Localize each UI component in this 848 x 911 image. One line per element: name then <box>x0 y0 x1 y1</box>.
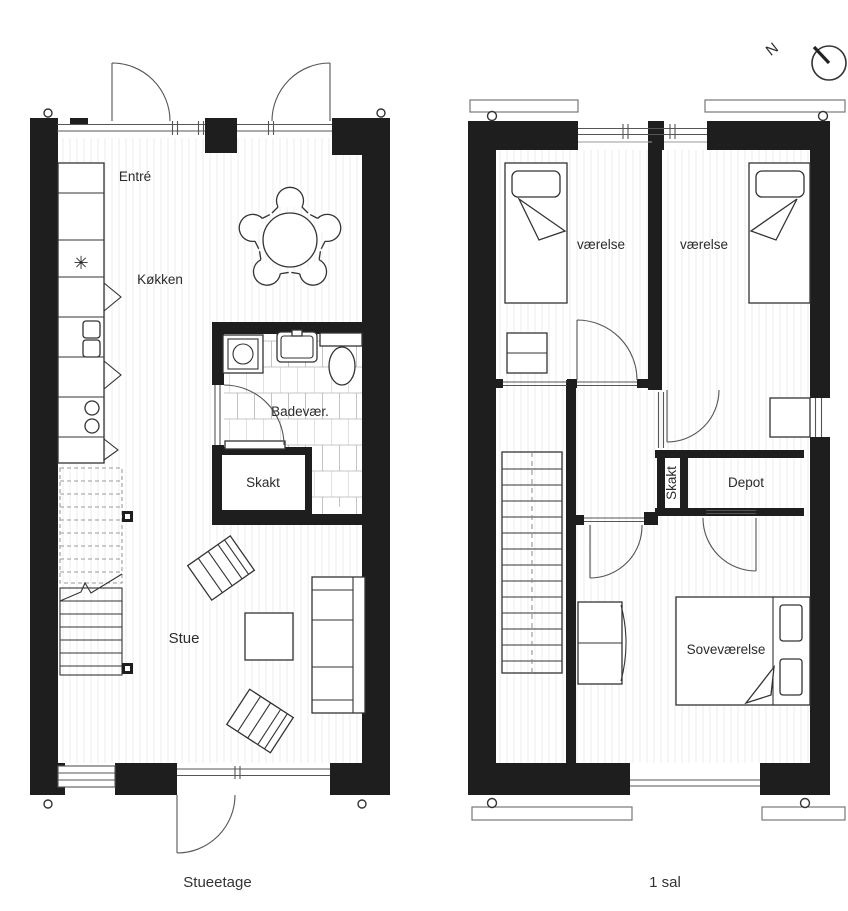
dining-table <box>263 213 317 267</box>
wardrobe <box>578 602 626 684</box>
first-floor-plan: N <box>455 25 848 840</box>
bathroom-sink <box>277 330 317 362</box>
sofa <box>312 577 365 713</box>
compass: N <box>763 39 846 80</box>
ground-bottom-windows <box>58 766 330 853</box>
stove-burner <box>85 401 99 415</box>
kitchen-sink <box>83 321 100 338</box>
washing-machine <box>223 335 263 373</box>
label-vaerelse-left: værelse <box>577 237 625 252</box>
label-kokken: Køkken <box>137 272 183 287</box>
freezer-icon: ✳ <box>73 253 88 273</box>
pillow <box>780 659 802 695</box>
label-skakt-first: Skakt <box>664 466 679 500</box>
bed-right <box>749 163 810 303</box>
bathroom-door-leaf <box>225 441 285 449</box>
label-badevaer: Badevær. <box>271 404 329 419</box>
ground-top-windows <box>57 121 332 135</box>
floorplan-canvas: ✳ <box>0 0 848 911</box>
pillow <box>512 171 560 197</box>
label-vaerelse-right: værelse <box>680 237 728 252</box>
label-sovevaerelse: Soveværelse <box>687 642 766 657</box>
ground-entry-doors <box>112 63 330 121</box>
label-entre: Entré <box>119 169 151 184</box>
pillow <box>780 605 802 641</box>
bed-left <box>505 163 567 303</box>
coffee-table <box>245 613 293 660</box>
first-floor-caption: 1 sal <box>600 874 730 891</box>
label-stue: Stue <box>169 630 200 647</box>
bathroom <box>212 322 390 525</box>
label-skakt-ground: Skakt <box>246 475 280 490</box>
label-depot: Depot <box>728 475 764 490</box>
ground-floor-caption: Stueetage <box>140 874 295 891</box>
desk-right <box>770 398 810 437</box>
compass-north-label: N <box>763 39 782 59</box>
compass-needle <box>814 47 829 63</box>
pillow <box>756 171 804 197</box>
ground-floor-plan: ✳ <box>25 55 400 865</box>
